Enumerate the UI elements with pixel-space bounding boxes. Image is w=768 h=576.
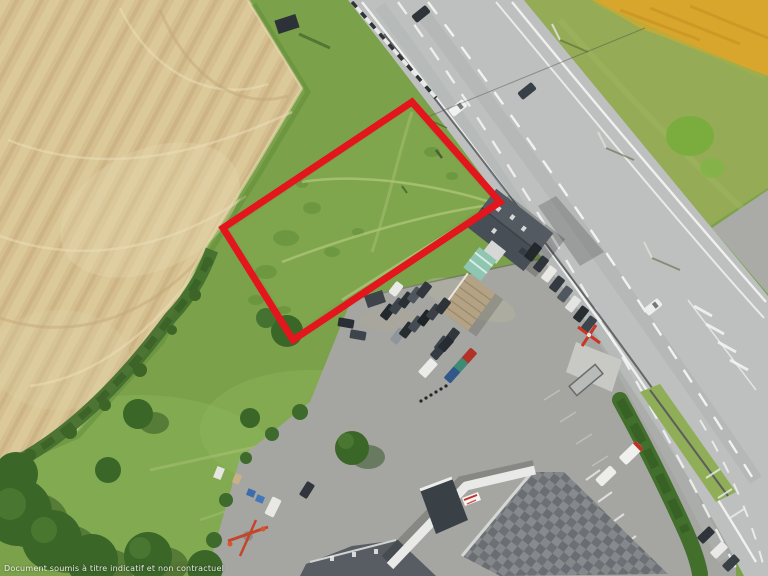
aerial-scene — [0, 0, 768, 576]
aerial-photo: Document soumis à titre indicatif et non… — [0, 0, 768, 576]
